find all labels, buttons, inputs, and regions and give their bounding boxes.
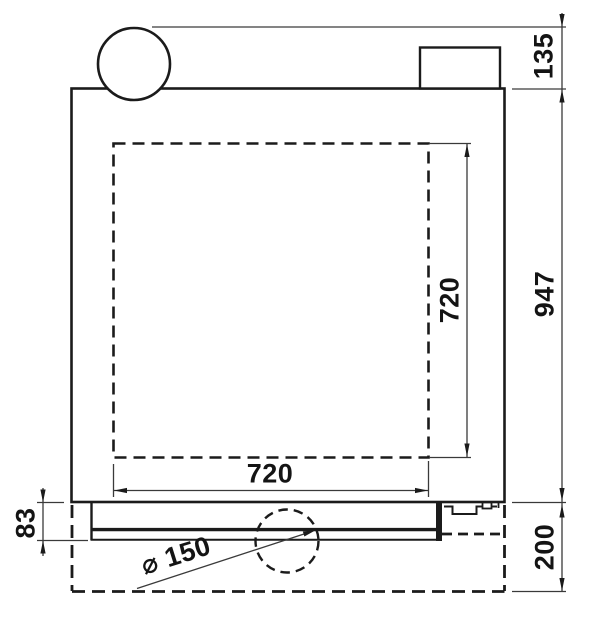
dim-label-body-height: 947 — [532, 271, 559, 318]
bottom-fittings — [444, 502, 499, 514]
burner-dashed-circle — [256, 510, 319, 573]
drawing-linework — [0, 0, 615, 628]
technical-drawing: 135 947 200 720 720 83 ⌀ 150 — [0, 0, 615, 628]
base-tray — [91, 502, 443, 541]
dim-label-flue-height: 135 — [531, 33, 558, 80]
tray-right-cap — [436, 502, 442, 541]
flue-circle — [98, 28, 170, 100]
dim-label-tray-height: 83 — [13, 507, 40, 538]
control-box — [420, 48, 500, 89]
dim-label-base-clearance: 200 — [532, 524, 559, 571]
dim-label-chamber-width: 720 — [247, 461, 294, 488]
dim-label-chamber-height: 720 — [437, 277, 464, 324]
